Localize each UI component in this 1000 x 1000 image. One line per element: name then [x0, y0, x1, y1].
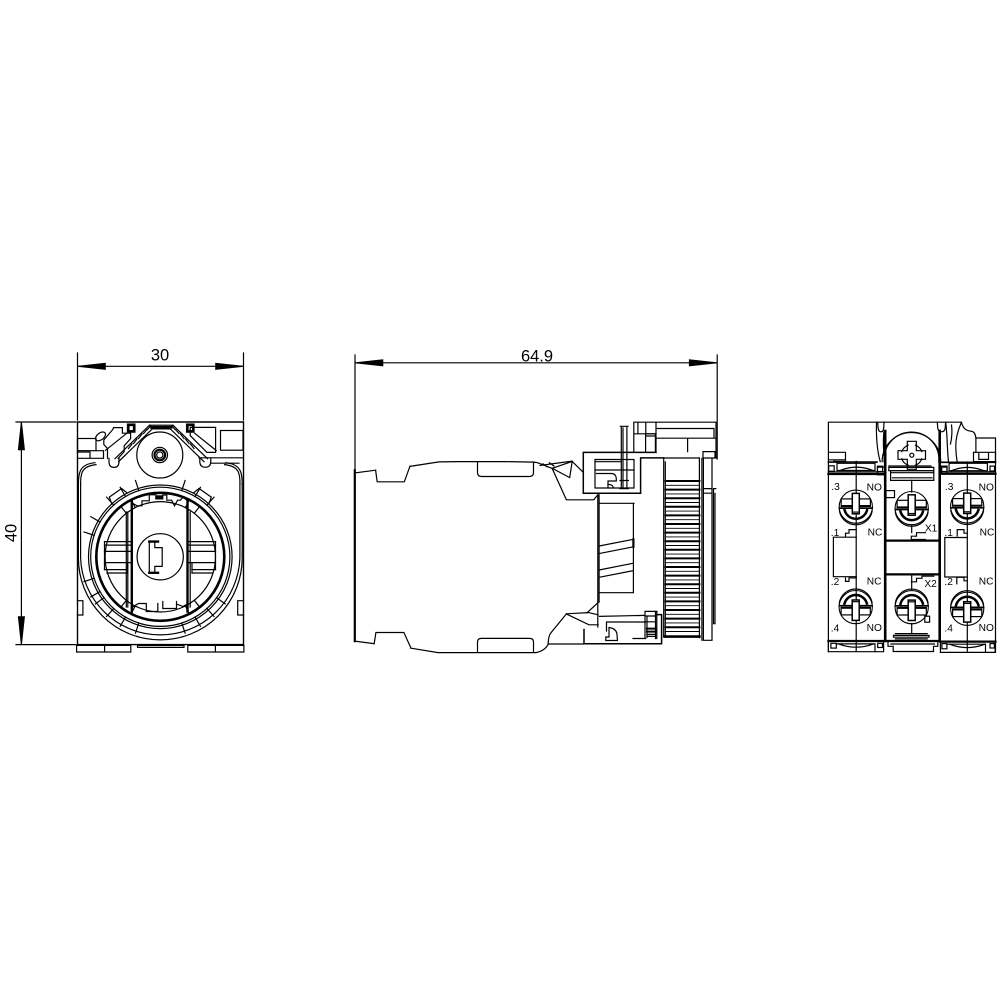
svg-text:.4: .4 — [944, 624, 953, 635]
svg-text:NO: NO — [979, 623, 994, 634]
svg-text:64.9: 64.9 — [521, 348, 553, 366]
svg-text:.2: .2 — [944, 577, 953, 588]
svg-text:NC: NC — [979, 576, 994, 587]
svg-text:NO: NO — [979, 482, 994, 493]
svg-text:NO: NO — [867, 482, 882, 493]
svg-text:.1: .1 — [944, 528, 953, 539]
svg-text:X1: X1 — [925, 523, 938, 534]
svg-text:.3: .3 — [831, 482, 840, 493]
svg-text:.2: .2 — [831, 577, 840, 588]
svg-text:X2: X2 — [924, 579, 937, 590]
svg-text:40: 40 — [2, 524, 20, 542]
svg-text:.4: .4 — [831, 624, 840, 635]
svg-text:.1: .1 — [831, 528, 840, 539]
svg-text:30: 30 — [151, 347, 169, 365]
svg-text:NC: NC — [868, 528, 883, 539]
svg-text:NO: NO — [867, 623, 882, 634]
svg-text:NC: NC — [867, 576, 882, 587]
svg-text:NC: NC — [980, 528, 995, 539]
svg-text:.3: .3 — [945, 482, 954, 493]
